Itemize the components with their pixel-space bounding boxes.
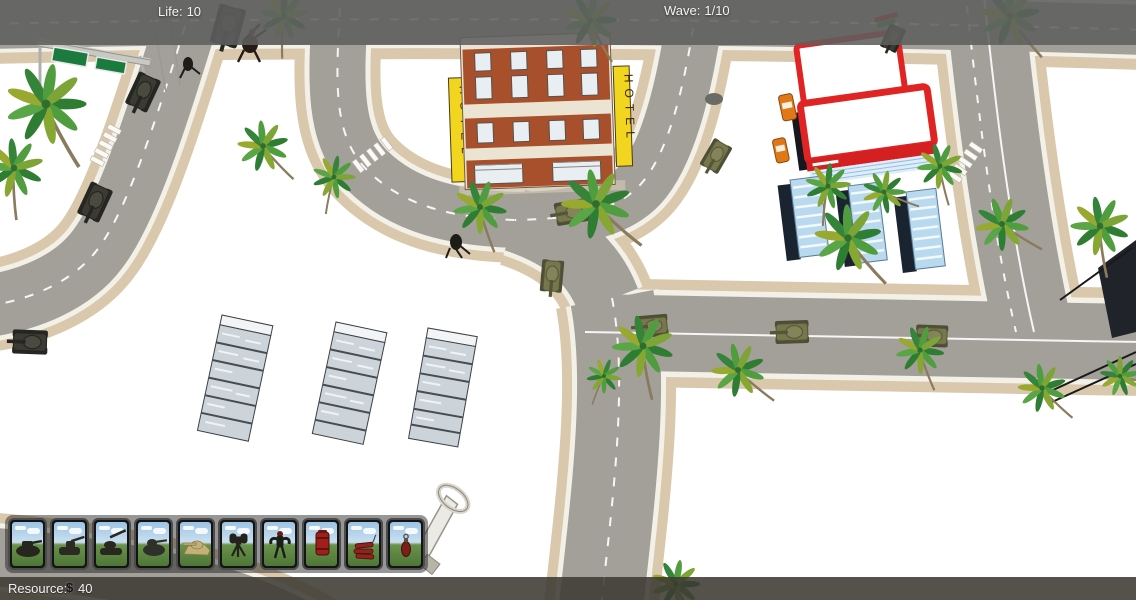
grenade-icon [390, 522, 421, 566]
slot-scout-tank[interactable] [134, 518, 173, 570]
slot-rocket-soldier[interactable] [260, 518, 299, 570]
manhole [705, 93, 723, 105]
life-label: Life: [158, 4, 183, 19]
game-window: HOTEL HOTEL [0, 0, 1136, 600]
slot-mg-turret[interactable] [218, 518, 257, 570]
game-map[interactable]: HOTEL HOTEL [0, 0, 1136, 600]
artillery-tank-icon [96, 522, 127, 566]
resource-bar: Resource: $ 40 [0, 577, 1136, 600]
rocket-soldier-icon [264, 522, 295, 566]
top-hud-bar: Life:10 Wave:1/10 [0, 0, 1136, 45]
heavy-tank-icon [12, 522, 43, 566]
slot-desert-tank[interactable] [176, 518, 215, 570]
wave-counter: Wave:1/10 [664, 3, 730, 18]
hotel-sign-text: HOTEL [621, 74, 637, 144]
mg-turret-icon [222, 522, 253, 566]
slot-explosive-barrel[interactable] [302, 518, 341, 570]
slot-heavy-tank[interactable] [8, 518, 47, 570]
unit-toolbar [5, 515, 428, 573]
slot-artillery-tank[interactable] [92, 518, 131, 570]
slot-dynamite[interactable] [344, 518, 383, 570]
slot-grenade[interactable] [386, 518, 425, 570]
resource-label: Resource: [8, 581, 67, 596]
life-counter: Life:10 [158, 4, 201, 19]
hotel-building: HOTEL HOTEL [447, 32, 639, 196]
scout-tank-icon [138, 522, 169, 566]
dollar-icon: $ [66, 580, 73, 595]
glass-towers [197, 315, 477, 447]
life-value: 10 [187, 4, 201, 19]
dynamite-icon [348, 522, 379, 566]
tank-destroyer-icon [54, 522, 85, 566]
wave-value: 1/10 [704, 3, 729, 18]
resource-amount: 40 [78, 581, 92, 596]
explosive-barrel-icon [306, 522, 337, 566]
slot-tank-destroyer[interactable] [50, 518, 89, 570]
desert-tank-icon [180, 522, 211, 566]
wave-label: Wave: [664, 3, 700, 18]
